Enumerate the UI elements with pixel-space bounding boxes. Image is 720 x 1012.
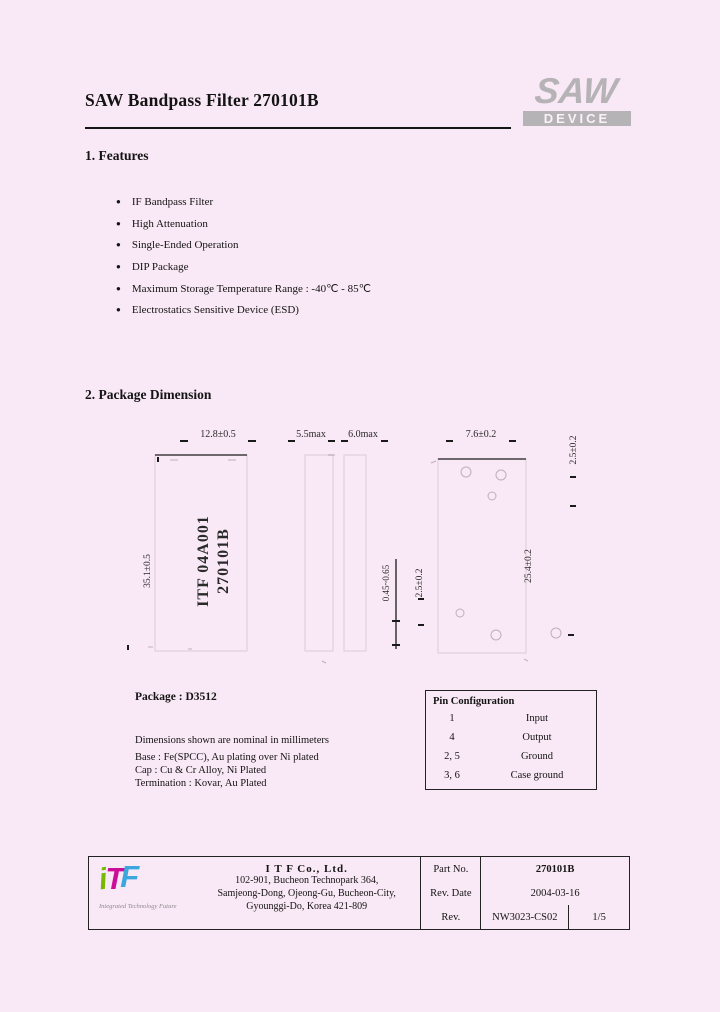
note-line: Base : Fe(SPCC), Au plating over Ni plat…: [135, 751, 329, 764]
table-row: 3, 6 Case ground: [426, 766, 596, 785]
page-number: 1/5: [569, 905, 629, 929]
saw-device-logo: SAW DEVICE: [518, 72, 634, 126]
package-marking-line1: ITF 04A001: [195, 515, 212, 607]
dim-label: 12.8±0.5: [200, 429, 236, 440]
footer-table: iTF Integrated Technology Future I T F C…: [88, 856, 630, 930]
saw-logo-text: SAW: [516, 72, 636, 110]
features-heading: 1. Features: [85, 148, 149, 164]
pin-number: 4: [426, 732, 478, 743]
list-item: ●DIP Package: [116, 256, 371, 278]
package-marking-line2: 270101B: [215, 528, 232, 594]
title-divider: [85, 127, 511, 129]
dim-label: 25.4±0.2: [524, 549, 534, 583]
rev-row: NW3023-CS02 1/5: [481, 905, 629, 929]
note-line: Termination : Kovar, Au Plated: [135, 777, 329, 790]
itf-logo: iTF Integrated Technology Future: [99, 862, 195, 910]
features-list: ●IF Bandpass Filter ●High Attenuation ●S…: [116, 191, 371, 321]
company-address-line: Samjeong-Dong, Ojeong-Gu, Bucheon-City,: [193, 888, 420, 901]
company-info: I T F Co., Ltd. 102-901, Bucheon Technop…: [193, 863, 420, 913]
table-row: 1 Input: [426, 709, 596, 728]
list-item: ●Electrostatics Sensitive Device (ESD): [116, 299, 371, 321]
feature-text: Electrostatics Sensitive Device (ESD): [132, 304, 299, 316]
footer-company-cell: iTF Integrated Technology Future I T F C…: [89, 857, 420, 929]
list-item: ●High Attenuation: [116, 213, 371, 235]
bullet-icon: ●: [116, 220, 121, 228]
bullet-icon: ●: [116, 263, 121, 271]
pin-number: 2, 5: [426, 751, 478, 762]
page-title: SAW Bandpass Filter 270101B: [85, 90, 319, 111]
part-no-value: 270101B: [481, 857, 629, 881]
pin-configuration-heading: Pin Configuration: [426, 691, 596, 709]
itf-logo-f: F: [120, 859, 139, 894]
rev-value: NW3023-CS02: [481, 905, 569, 929]
pin-function: Output: [478, 732, 596, 743]
package-notes: Dimensions shown are nominal in millimet…: [135, 734, 329, 790]
note-line: Dimensions shown are nominal in millimet…: [135, 734, 329, 747]
package-drawing: 12.8±0.5 35.1±0.5 ITF 04A001 270101B 5.5…: [100, 413, 620, 685]
dim-label: 5.5max: [296, 429, 326, 440]
feature-text: Single-Ended Operation: [132, 239, 239, 251]
pin-configuration-table: Pin Configuration 1 Input 4 Output 2, 5 …: [425, 690, 597, 790]
dim-label: 2.5±0.2: [415, 568, 425, 597]
rev-date-value: 2004-03-16: [481, 881, 629, 905]
feature-text: IF Bandpass Filter: [132, 196, 213, 208]
bullet-icon: ●: [116, 306, 121, 314]
pin-function: Case ground: [478, 770, 596, 781]
feature-text: DIP Package: [132, 261, 189, 273]
footer-label-column: Part No. Rev. Date Rev.: [420, 857, 480, 929]
bullet-icon: ●: [116, 241, 121, 249]
pin-number: 1: [426, 713, 478, 724]
footer-value-column: 270101B 2004-03-16 NW3023-CS02 1/5: [480, 857, 629, 929]
dim-label: 0.45~0.65: [381, 564, 391, 601]
dim-label: 6.0max: [348, 429, 378, 440]
pin-function: Input: [478, 713, 596, 724]
list-item: ●Single-Ended Operation: [116, 234, 371, 256]
rev-label: Rev.: [421, 905, 480, 929]
dim-label: 2.5±0.2: [569, 435, 579, 464]
datasheet-page: SAW Bandpass Filter 270101B SAW DEVICE 1…: [0, 0, 720, 1012]
part-no-label: Part No.: [421, 857, 480, 881]
pin-number: 3, 6: [426, 770, 478, 781]
list-item: ●Maximum Storage Temperature Range : -40…: [116, 278, 371, 300]
list-item: ●IF Bandpass Filter: [116, 191, 371, 213]
dim-label: 35.1±0.5: [143, 554, 153, 588]
note-line: Cap : Cu & Cr Alloy, Ni Plated: [135, 764, 329, 777]
feature-text: High Attenuation: [132, 218, 208, 230]
bullet-icon: ●: [116, 285, 121, 293]
rev-date-label: Rev. Date: [421, 881, 480, 905]
company-address-line: 102-901, Bucheon Technopark 364,: [193, 875, 420, 888]
itf-logo-letters: iTF: [99, 862, 195, 902]
feature-text: Maximum Storage Temperature Range : -40℃…: [132, 282, 371, 295]
itf-logo-tagline: Integrated Technology Future: [99, 903, 195, 910]
package-dimension-heading: 2. Package Dimension: [85, 387, 211, 403]
dim-label: 7.6±0.2: [466, 429, 497, 440]
device-logo-bar: DEVICE: [523, 111, 631, 126]
table-row: 4 Output: [426, 728, 596, 747]
table-row: 2, 5 Ground: [426, 747, 596, 766]
company-name: I T F Co., Ltd.: [193, 863, 420, 875]
pin-function: Ground: [478, 751, 596, 762]
bullet-icon: ●: [116, 198, 121, 206]
company-address-line: Gyounggi-Do, Korea 421-809: [193, 901, 420, 914]
package-label: Package : D3512: [135, 691, 217, 703]
